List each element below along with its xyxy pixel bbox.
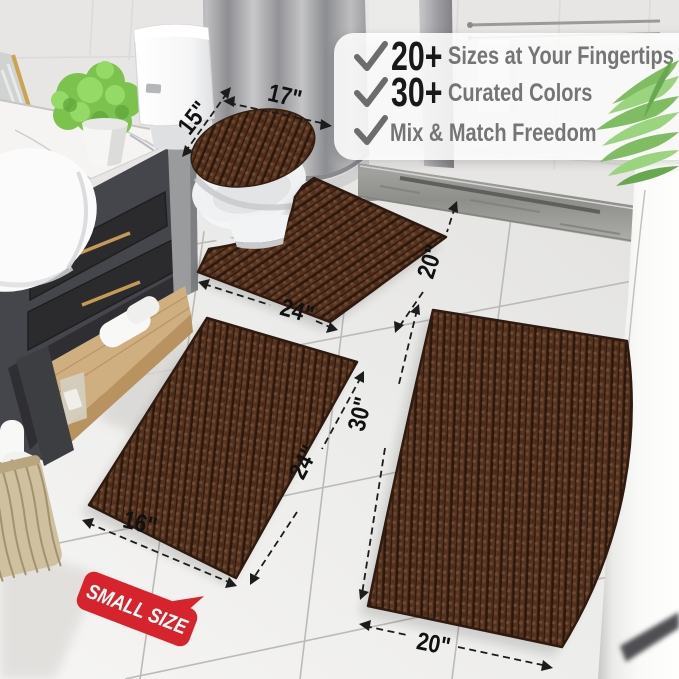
svg-text:Curated Colors: Curated Colors: [448, 79, 592, 107]
svg-text:30+: 30+: [391, 68, 442, 115]
svg-text:Mix & Match Freedom: Mix & Match Freedom: [390, 119, 597, 147]
svg-text:Sizes at Your Fingertips: Sizes at Your Fingertips: [448, 42, 674, 70]
